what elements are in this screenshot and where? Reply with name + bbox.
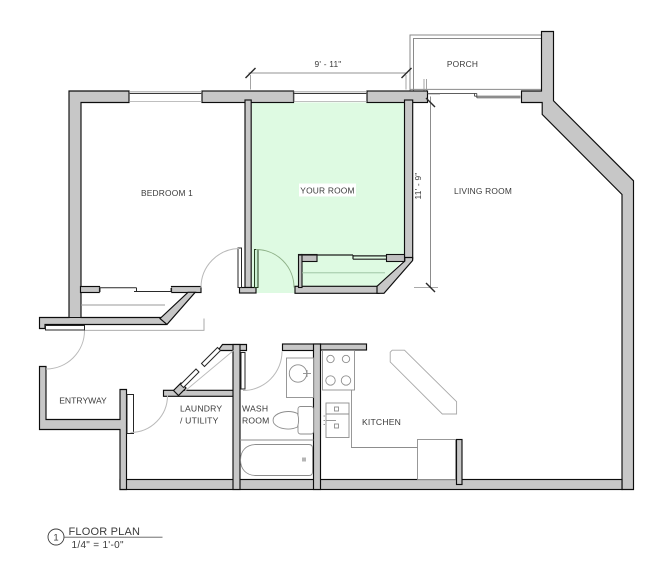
svg-text:11' - 9": 11' - 9" bbox=[413, 173, 423, 200]
svg-text:FLOOR PLAN: FLOOR PLAN bbox=[69, 526, 141, 538]
svg-text:PORCH: PORCH bbox=[447, 59, 478, 69]
svg-text:KITCHEN: KITCHEN bbox=[362, 417, 401, 427]
svg-text:LIVING ROOM: LIVING ROOM bbox=[454, 186, 512, 196]
svg-text:ENTRYWAY: ENTRYWAY bbox=[59, 396, 107, 406]
svg-text:1: 1 bbox=[53, 533, 58, 544]
svg-text:YOUR ROOM: YOUR ROOM bbox=[300, 186, 354, 196]
svg-text:WASH: WASH bbox=[242, 404, 268, 414]
svg-text:ROOM: ROOM bbox=[242, 416, 270, 426]
svg-text:BEDROOM 1: BEDROOM 1 bbox=[141, 188, 193, 198]
svg-text:1/4" = 1'-0": 1/4" = 1'-0" bbox=[72, 540, 125, 551]
svg-text:9' - 11": 9' - 11" bbox=[315, 59, 342, 69]
svg-text:/ UTILITY: / UTILITY bbox=[180, 416, 219, 426]
svg-text:LAUNDRY: LAUNDRY bbox=[180, 404, 222, 414]
